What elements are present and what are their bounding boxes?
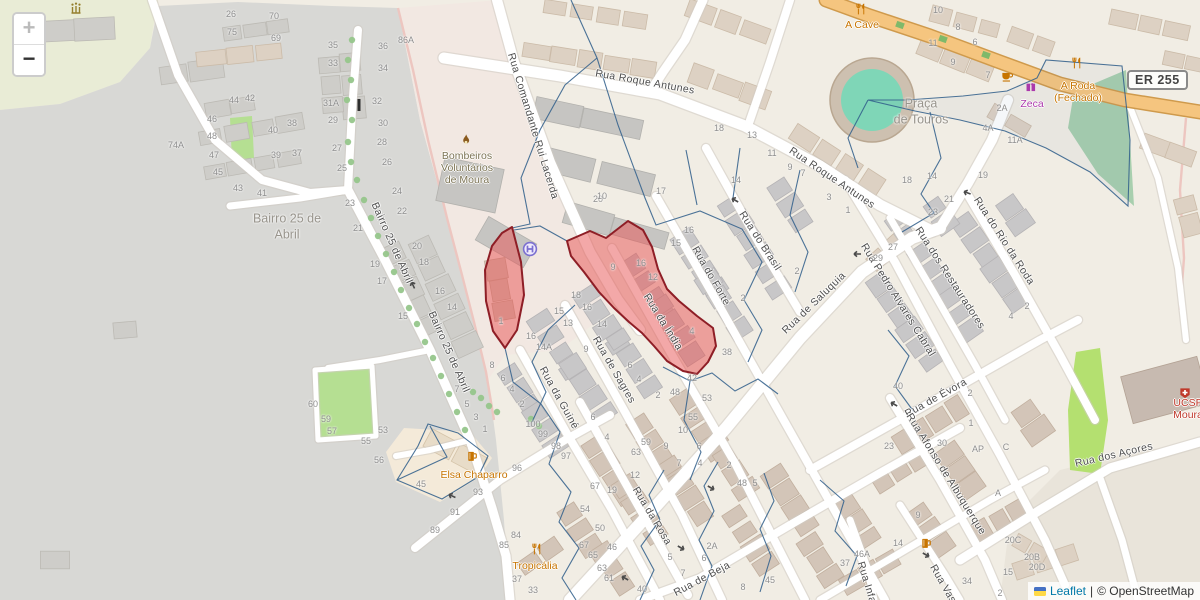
map-tiles (0, 0, 1200, 600)
zoom-out-button[interactable]: − (14, 45, 44, 75)
ukraine-flag-icon (1034, 587, 1046, 596)
map-canvas[interactable]: Rua Comandante Rui LacerdaRua Roque Antu… (0, 0, 1200, 600)
leaflet-link[interactable]: Leaflet (1050, 584, 1086, 598)
zoom-control: + − (12, 12, 46, 77)
road-shield-er255: ER 255 (1127, 70, 1188, 90)
osm-copyright-link[interactable]: © OpenStreetMap (1097, 584, 1194, 598)
attribution-separator: | (1090, 584, 1093, 598)
attribution-bar: Leaflet | © OpenStreetMap (1028, 582, 1200, 600)
zoom-in-button[interactable]: + (14, 14, 44, 45)
gate-icon (358, 99, 361, 111)
